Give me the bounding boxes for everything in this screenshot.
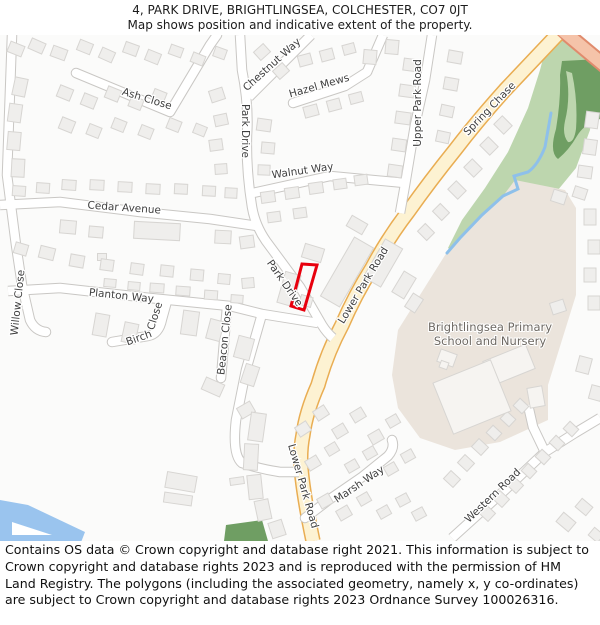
building [174, 184, 188, 195]
building [128, 281, 141, 290]
building [215, 164, 228, 175]
building [395, 111, 412, 125]
building [12, 186, 26, 197]
building [363, 49, 377, 64]
building [584, 268, 596, 282]
building [7, 103, 22, 123]
building [247, 474, 263, 499]
building [584, 209, 596, 225]
building [260, 191, 275, 204]
building [527, 386, 545, 408]
building [104, 278, 117, 287]
building [59, 220, 76, 234]
building [190, 269, 204, 281]
building [583, 139, 598, 156]
building [89, 226, 104, 238]
page-title: 4, PARK DRIVE, BRIGHTLINGSEA, COLCHESTER… [0, 3, 600, 18]
building [293, 207, 307, 219]
building [130, 263, 144, 276]
header: 4, PARK DRIVE, BRIGHTLINGSEA, COLCHESTER… [0, 0, 600, 35]
building [387, 164, 403, 178]
building [176, 286, 191, 296]
building [248, 412, 267, 442]
building [11, 159, 25, 178]
building [134, 221, 181, 240]
building [204, 290, 218, 300]
building [577, 165, 593, 179]
street-label-upper-park-road: Upper Park Road [412, 59, 424, 147]
building [256, 118, 272, 132]
building [69, 254, 85, 268]
copyright-notice: Contains OS data © Crown copyright and d… [0, 541, 600, 609]
page-subtitle: Map shows position and indicative extent… [0, 18, 600, 33]
building [215, 230, 232, 244]
building [62, 180, 77, 191]
building [333, 178, 347, 190]
building [7, 131, 22, 150]
building [218, 273, 231, 284]
building [308, 182, 323, 195]
building [261, 142, 275, 154]
building [439, 104, 454, 117]
building [209, 139, 223, 152]
page: 4, PARK DRIVE, BRIGHTLINGSEA, COLCHESTER… [0, 0, 600, 625]
building [146, 184, 161, 195]
building [231, 295, 244, 304]
building [150, 283, 165, 293]
school-label-line2: School and Nursery [434, 334, 547, 348]
building [584, 111, 599, 129]
school-label-line1: Brightlingsea Primary [428, 320, 552, 334]
building [284, 187, 299, 200]
building [258, 165, 270, 175]
building [588, 240, 600, 254]
building [242, 277, 255, 288]
building [435, 130, 450, 143]
building [443, 77, 459, 91]
building [267, 211, 281, 223]
building [180, 310, 199, 336]
building [447, 50, 463, 64]
building [243, 444, 258, 471]
building [160, 265, 174, 277]
building [213, 113, 228, 126]
building [391, 138, 407, 152]
street-label-park-drive-upper: Park Drive [239, 104, 251, 158]
map-svg: Chestnut Way Hazel Mews Ash Close Park D… [0, 35, 600, 541]
building [230, 477, 245, 486]
building [100, 259, 114, 272]
building [36, 183, 50, 194]
building [588, 296, 600, 310]
building [202, 186, 216, 197]
building [385, 39, 399, 54]
building [225, 188, 238, 199]
building [90, 180, 105, 191]
building [239, 235, 255, 249]
building [118, 182, 133, 193]
map: Chestnut Way Hazel Mews Ash Close Park D… [0, 35, 600, 541]
building [354, 174, 368, 186]
